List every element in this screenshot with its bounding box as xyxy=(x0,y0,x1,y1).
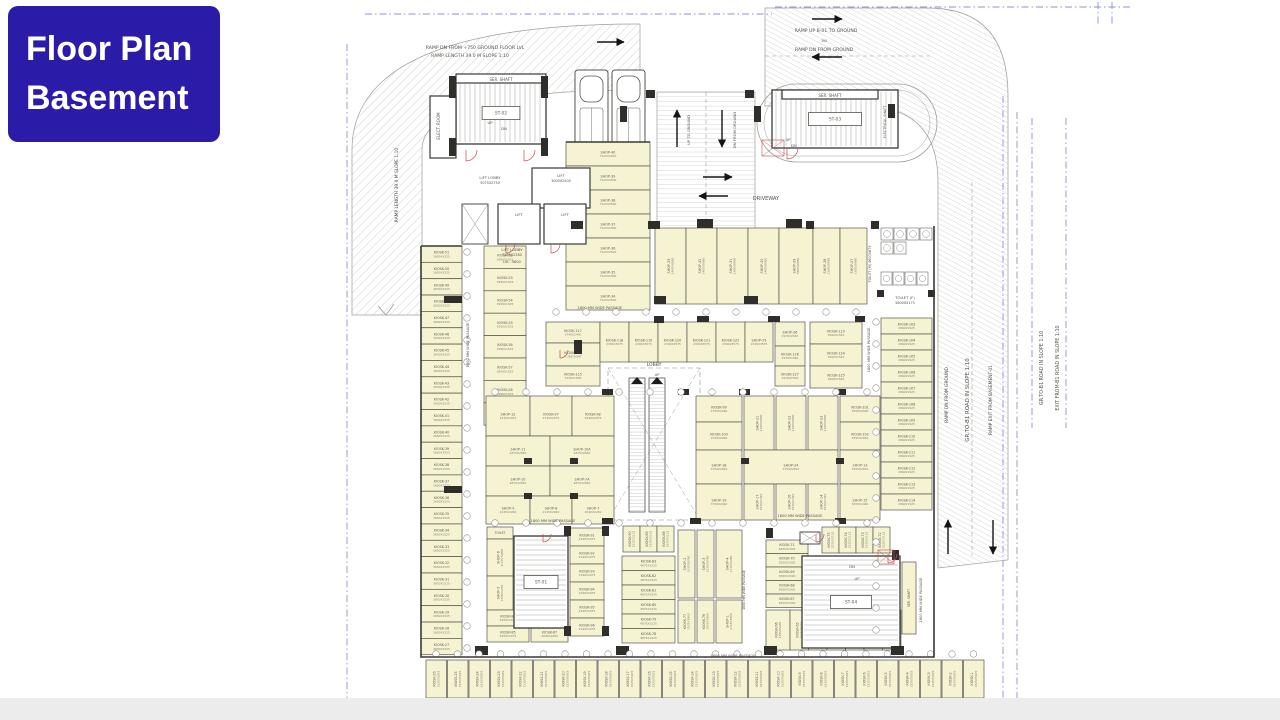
structural-column xyxy=(741,458,749,464)
grid-bubble xyxy=(678,389,685,396)
unit-label: KIOSK-41525X5025 xyxy=(906,670,914,687)
grid-bubble xyxy=(873,583,880,590)
unit-label: KIOSK-1202300X3575 xyxy=(664,338,682,346)
unit-label: SHOP-193750X2440 xyxy=(711,498,728,506)
unit-label: KIOSK-91525X5025 xyxy=(798,670,806,687)
toilet-fixture xyxy=(907,228,919,240)
annotation-text: 5075X2750 xyxy=(480,181,500,185)
unit-label: SER. SHAFT xyxy=(907,589,911,608)
slide-bottom-band xyxy=(0,698,1280,720)
unit-label: KIOSK-1003750X2060 xyxy=(710,432,728,440)
annotation-text-vertical: ELECTRICAL SHAFT xyxy=(883,105,887,139)
unit-label: KIOSK-141525X5025 xyxy=(691,670,699,687)
annotation-text-vertical: GR.TO-B1 ROAD IN SLOPE 1:10 xyxy=(1039,331,1045,405)
unit-label: KIOSK-343650X1525 xyxy=(433,529,450,537)
unit-label: KIOSK-1132960X1525 xyxy=(898,482,916,490)
unit-label: KIOSK-662355X5030 xyxy=(774,621,782,638)
unit-label: KIOSK-922190X1675 xyxy=(579,551,596,559)
slide-canvas: KIOSK-513650X1525KIOSK-503650X1525KIOSK-… xyxy=(0,0,1280,720)
grid-bubble xyxy=(673,309,680,316)
annotation-text: RAMP DN FROM GROUND xyxy=(795,47,854,53)
stair-label: ST-04 xyxy=(845,600,857,606)
structural-column xyxy=(444,486,462,493)
door-swing xyxy=(787,148,798,159)
grid-bubble xyxy=(492,520,499,527)
unit-label: KIOSK-423650X1525 xyxy=(433,398,450,406)
page-title-line2: Basement xyxy=(26,74,220,123)
toilet-fixture xyxy=(917,272,928,285)
structural-column xyxy=(766,528,773,538)
grid-bubble xyxy=(873,407,880,414)
grid-bubble xyxy=(709,520,716,527)
grid-bubble xyxy=(643,309,650,316)
unit-label: KIOSK-962190X1675 xyxy=(579,623,596,631)
grid-bubble xyxy=(464,579,471,586)
unit-label: KIOSK-713650X1500 xyxy=(779,543,796,551)
grid-bubble xyxy=(464,645,471,652)
unit-label: KIOSK-731525X2115 xyxy=(861,531,869,548)
grid-bubble xyxy=(464,293,471,300)
annotation-text: LIFT xyxy=(515,212,523,217)
unit-label: KIOSK-814875X1525 xyxy=(640,589,657,597)
grid-bubble xyxy=(464,601,471,608)
grid-bubble xyxy=(873,495,880,502)
toilet-fixture xyxy=(905,272,916,285)
unit-label: KIOSK-912190X1675 xyxy=(579,533,596,541)
unit-label: KIOSK-71525X5025 xyxy=(841,670,849,687)
annotation-text-vertical: 1800 MM WIDE PASSAGE xyxy=(466,322,470,368)
grid-bubble xyxy=(585,389,592,396)
unit-label: KIOSK-383650X1525 xyxy=(433,463,450,471)
unit-label: KIOSK-991750X2060 xyxy=(711,405,728,413)
unit-label: KIOSK-503650X1525 xyxy=(433,267,450,275)
unit-label: KIOSK-855450X1675 xyxy=(500,630,517,638)
unit-label: KIOSK-403650X1525 xyxy=(433,430,450,438)
structural-column xyxy=(888,104,895,118)
unit-label: KIOSK-131525X5025 xyxy=(712,670,720,687)
annotation-text: 3000X2500 xyxy=(551,179,571,183)
annotation-text-vertical: UP TO GROUND xyxy=(686,115,691,145)
grid-bubble xyxy=(616,520,623,527)
unit-label: SHOP-104875X2650 xyxy=(510,477,527,485)
annotation-text: LIFT LOBBY xyxy=(501,247,523,252)
grid-bubble xyxy=(464,623,471,630)
annotation-text: LIFT LOBBY xyxy=(479,175,501,180)
unit-label: KIOSK-834875X1525 xyxy=(640,560,657,568)
grid-bubble xyxy=(464,557,471,564)
unit-label: SHOP-232100X5000 xyxy=(819,414,827,431)
grid-bubble xyxy=(873,319,880,326)
grid-bubble xyxy=(864,389,871,396)
unit-label: KIOSK-824875X1525 xyxy=(640,574,657,582)
unit-label: SHOP-377415X2500 xyxy=(600,222,617,230)
unit-label: SHOP-357415X2500 xyxy=(600,270,617,278)
unit-label: KIOSK-81525X5025 xyxy=(820,670,828,687)
grid-bubble xyxy=(873,341,880,348)
unit-label: KIOSK-473650X1525 xyxy=(433,316,450,324)
annotation-text: RAMP DN FROM +750 GROUND FLOOR LVL xyxy=(426,45,525,51)
structural-column xyxy=(570,493,578,499)
unit-label: KIOSK-493650X1525 xyxy=(433,283,450,291)
unit-label: SHOP-133455X2810 xyxy=(852,463,869,471)
unit-label: SHOP-282300X8080 xyxy=(823,257,831,274)
annotation-text: LOBBY xyxy=(647,362,662,368)
grid-bubble xyxy=(873,561,880,568)
ramp-center xyxy=(657,92,755,232)
structural-column xyxy=(541,76,548,98)
unit-label: SHOP-68.235 SQMT xyxy=(496,548,504,566)
unit-label: KIOSK-1052960X1525 xyxy=(898,354,916,362)
annotation-text: SER. SHAFT xyxy=(489,77,513,82)
unit-label: KIOSK-771525X3960 xyxy=(683,613,691,630)
unit-label: SHOP-212100X5000 xyxy=(755,414,763,431)
structural-column xyxy=(449,76,456,98)
annotation-text-vertical: RAMP DN FROM GROUND xyxy=(944,366,950,422)
unit-label: KIOSK-273650X1525 xyxy=(433,643,450,651)
unit-label: KIOSK-283650X1525 xyxy=(433,627,450,635)
unit-label: KIOSK-881525X2115 xyxy=(662,530,670,547)
grid-bubble xyxy=(647,520,654,527)
unit-label: KIOSK-11525X5025 xyxy=(970,670,978,687)
annotation-text-vertical: RAMP EXIT FROM BASEMENT-01 xyxy=(988,365,994,435)
grid-bubble xyxy=(464,249,471,256)
structural-column xyxy=(570,458,578,464)
unit-label: KIOSK-121525X5025 xyxy=(734,670,742,687)
unit-label: SHOP-114875X2650 xyxy=(510,447,527,455)
toilet-fixture xyxy=(894,228,906,240)
unit-label: KIOSK-1142960X1525 xyxy=(898,498,916,506)
grid-bubble xyxy=(464,315,471,322)
unit-label: KIOSK-1272970X1500 xyxy=(781,372,799,380)
annotation-text: RAMP UP B-01 TO GROUND xyxy=(795,28,858,34)
grid-bubble xyxy=(833,389,840,396)
annotation-text-vertical: EXIT FROM-B1 ROAD IN SLOPE 1:10 xyxy=(1055,325,1061,410)
grid-bubble xyxy=(793,309,800,316)
unit-label: KIOSK-794875X1525 xyxy=(640,618,657,626)
annotation-text: LVL -3600 xyxy=(503,260,521,264)
structural-column xyxy=(602,526,609,536)
unit-label: SHOP-347415X2500 xyxy=(600,294,617,302)
grid-bubble xyxy=(647,389,654,396)
unit-label: SHOP-21525X6780 xyxy=(683,555,691,572)
unit-label: KIOSK-1042960X1525 xyxy=(898,338,916,346)
staircase-st-02: ST-02 xyxy=(456,82,546,144)
unit-label: SHOP-82145X2240 xyxy=(543,506,560,514)
annotation-text-vertical: 1800 MM WIDE PASSAGE xyxy=(919,577,923,623)
unit-label: SHOP-222100X5000 xyxy=(787,414,795,431)
grid-bubble xyxy=(464,271,471,278)
structural-column xyxy=(449,138,456,156)
annotation-text: DRIVEWAY xyxy=(753,196,780,202)
annotation-text: DN xyxy=(501,126,507,131)
annotation-text-vertical: 1800 MM WIDE PASSAGE xyxy=(742,570,746,610)
structural-column xyxy=(697,316,709,322)
structural-column xyxy=(745,90,754,98)
escalator-left xyxy=(629,378,645,512)
annotation-text: LIFT xyxy=(561,212,569,217)
unit-label: KIOSK-804875X1525 xyxy=(640,603,657,611)
unit-label: SHOP-153455X2440 xyxy=(852,498,869,506)
structural-column xyxy=(602,518,613,524)
structural-column xyxy=(855,316,865,322)
structural-column xyxy=(571,221,583,229)
unit-label: KIOSK-463650X1525 xyxy=(433,332,450,340)
unit-label: KIOSK-1233000X1525 xyxy=(827,329,845,337)
grid-bubble xyxy=(853,309,860,316)
unit-label: SHOP-293800X8080 xyxy=(792,257,800,274)
grid-bubble xyxy=(703,309,710,316)
unit-label: KIOSK-363650X1525 xyxy=(433,496,450,504)
unit-label: KIOSK-563950X1525 xyxy=(497,343,514,351)
unit-label: TOILET xyxy=(493,531,505,535)
unit-label: KIOSK-952190X1675 xyxy=(579,605,596,613)
unit-label: KIOSK-741525X2115 xyxy=(844,531,852,548)
stair-label: ST-01 xyxy=(535,580,547,586)
structural-column xyxy=(871,221,879,229)
unit-label: SHOP-92245X2240 xyxy=(500,506,517,514)
unit-label: KIOSK-151525X5025 xyxy=(669,670,677,687)
unit-label: KIOSK-553950X1525 xyxy=(497,321,514,329)
structural-column xyxy=(602,626,609,636)
unit-label: SHOP-72040X2240 xyxy=(585,506,602,514)
unit-label: KIOSK-191525X5025 xyxy=(583,670,591,687)
toilet-fixture xyxy=(881,272,892,285)
unit-label: KIOSK-51525X5025 xyxy=(884,670,892,687)
grid-bubble xyxy=(873,605,880,612)
unit-label: SHOP-12115X3960 xyxy=(725,613,733,630)
unit-label: KIOSK-333650X1525 xyxy=(433,545,450,553)
structural-column xyxy=(564,526,571,536)
grid-bubble xyxy=(553,309,560,316)
unit-label: KIOSK-932190X1675 xyxy=(579,569,596,577)
unit-label: KIOSK-583950X1525 xyxy=(497,388,514,396)
unit-label: SHOP-272300X8080 xyxy=(850,257,858,274)
grid-bubble xyxy=(492,389,499,396)
grid-bubble xyxy=(554,389,561,396)
unit-label: KIOSK-1072960X1525 xyxy=(898,386,916,394)
unit-label: KIOSK-573950X1525 xyxy=(497,366,514,374)
unit-label: KIOSK-101525X5025 xyxy=(777,670,785,687)
grid-bubble xyxy=(873,517,880,524)
unit-label: KIOSK-393650X1525 xyxy=(433,447,450,455)
unit-label: SHOP-252345X3575 xyxy=(751,338,768,346)
unit-label: SHOP-42115X6780 xyxy=(725,555,733,572)
unit-label: KIOSK-761525X3960 xyxy=(702,613,710,630)
unit-label: KIOSK-261525X5025 xyxy=(433,670,441,687)
grid-bubble xyxy=(833,520,840,527)
unit-label: KIOSK-513650X1525 xyxy=(433,251,450,259)
structural-column xyxy=(768,316,780,322)
grid-bubble xyxy=(802,389,809,396)
unit-label: KIOSK-1112960X1525 xyxy=(898,450,916,458)
unit-label: KIOSK-673650X1500 xyxy=(779,597,796,605)
unit-label: KIOSK-1013055X2000 xyxy=(851,405,869,413)
structural-column xyxy=(877,290,884,297)
unit-label: SHOP-332400X8080 xyxy=(667,257,675,274)
structural-column xyxy=(654,296,666,304)
grid-bubble xyxy=(464,535,471,542)
unit-label: KIOSK-683650X1500 xyxy=(779,584,796,592)
unit-label: KIOSK-1253000X1525 xyxy=(827,373,845,381)
grid-bubble xyxy=(802,520,809,527)
unit-label: KIOSK-1032960X1525 xyxy=(898,322,916,330)
unit-label: KIOSK-972145X2975 xyxy=(543,412,560,420)
grid-bubble xyxy=(740,520,747,527)
unit-label: KIOSK-453650X1525 xyxy=(433,349,450,357)
annotation-text: 300 xyxy=(821,39,827,43)
staircase-st-01: ST-01 xyxy=(514,536,568,628)
unit-label: KIOSK-21525X5025 xyxy=(949,670,957,687)
grid-bubble xyxy=(873,451,880,458)
annotation-text: UP xyxy=(655,373,661,377)
grid-bubble xyxy=(464,513,471,520)
unit-label: KIOSK-784875X1525 xyxy=(640,632,657,640)
unit-label: KIOSK-211525X5025 xyxy=(540,670,548,687)
page-title-line1: Floor Plan xyxy=(26,25,220,74)
unit-label: KIOSK-31525X5025 xyxy=(927,670,935,687)
unit-label: KIOSK-61525X5025 xyxy=(863,670,871,687)
unit-label: SHOP-302400X8080 xyxy=(760,257,768,274)
unit-label: KIOSK-891525X2115 xyxy=(645,530,653,547)
unit-label: KIOSK-433650X1525 xyxy=(433,381,450,389)
stair-label: ST-02 xyxy=(495,111,507,117)
structural-column xyxy=(602,389,613,395)
annotation-text: 7230X2280 xyxy=(502,253,522,257)
grid-bubble xyxy=(740,389,747,396)
unit-label: KIOSK-1262970X1500 xyxy=(781,352,799,360)
grid-bubble xyxy=(864,520,871,527)
structural-column xyxy=(564,626,571,636)
grid-bubble xyxy=(733,309,740,316)
structural-column xyxy=(891,646,904,655)
grid-bubble xyxy=(873,429,880,436)
unit-label: KIOSK-161525X5025 xyxy=(648,670,656,687)
grid-bubble xyxy=(970,651,977,658)
structural-column xyxy=(764,646,777,655)
structural-column xyxy=(744,296,758,304)
grid-bubble xyxy=(616,389,623,396)
grid-bubble xyxy=(873,385,880,392)
unit-label: KIOSK-1182300X3575 xyxy=(606,338,624,346)
unit-label: KIOSK-533950X1525 xyxy=(497,276,514,284)
toilet-fixture xyxy=(920,228,932,240)
unit-label: SHOP-183750X2810 xyxy=(711,463,728,471)
unit-label: KIOSK-201525X5025 xyxy=(562,670,570,687)
grid-bubble xyxy=(873,473,880,480)
unit-label: KIOSK-1173740X2400 xyxy=(564,329,582,337)
structural-column xyxy=(786,219,802,228)
unit-label: SHOP-171525X2440 xyxy=(755,493,763,510)
unit-label: SHOP-122245X2975 xyxy=(500,412,517,420)
door-swing xyxy=(524,150,535,161)
grid-bubble xyxy=(464,403,471,410)
annotation-text: 1800 MM WIDE PASSAGE xyxy=(531,519,577,523)
unit-label: KIOSK-221525X5025 xyxy=(519,670,527,687)
annotation-text: 1800 MM WIDE PASSAGE xyxy=(778,514,824,518)
grid-bubble xyxy=(523,520,530,527)
unit-label: KIOSK-313650X1525 xyxy=(433,578,450,586)
unit-label: KIOSK-873940X1060 xyxy=(541,630,558,638)
unit-label: KIOSK-323650X1525 xyxy=(433,561,450,569)
grid-bubble xyxy=(949,651,956,658)
unit-label: KIOSK-721525X2115 xyxy=(878,531,886,548)
annotation-text: SER. SHAFT xyxy=(818,93,842,98)
unit-label: KIOSK-171525X5025 xyxy=(626,670,634,687)
annotation-text-vertical: RAMP LENGTH 39.0 M SLOPE 1:10 xyxy=(394,148,400,223)
unit-label: SHOP-10A4875X2650 xyxy=(573,447,591,455)
grid-bubble xyxy=(678,520,685,527)
unit-label: KIOSK-251525X5025 xyxy=(454,670,462,687)
grid-bubble xyxy=(709,389,716,396)
annotation-text: DN xyxy=(849,564,855,569)
grid-bubble xyxy=(464,381,471,388)
door-swing xyxy=(466,150,477,161)
unit-label: KIOSK-543950X1525 xyxy=(497,298,514,306)
unit-label: KIOSK-241525X5025 xyxy=(476,670,484,687)
title-card: Floor Plan Basement xyxy=(8,6,220,142)
unit-label: KIOSK-181525X5025 xyxy=(605,670,613,687)
annotation-text-vertical: DN FROM GROUND xyxy=(732,112,737,148)
unit-label: SHOP-387415X2500 xyxy=(600,198,617,206)
staircase-st-04: ST-04 xyxy=(802,556,900,648)
structural-column xyxy=(836,458,844,464)
grid-bubble xyxy=(464,447,471,454)
annotation-text: UP xyxy=(786,138,792,142)
annotation-text: UP xyxy=(487,120,493,125)
grid-bubble xyxy=(873,539,880,546)
grid-bubble xyxy=(873,627,880,634)
unit-label: SHOP-397415X2500 xyxy=(600,174,617,182)
unit-label: KIOSK-942190X1675 xyxy=(579,587,596,595)
annotation-text: TOILET (F) xyxy=(894,295,915,300)
escalator-right xyxy=(649,378,665,512)
structural-column xyxy=(648,221,660,229)
annotation-text: UP xyxy=(854,576,860,581)
annotation-text: 1800 MM WIDE PASSAGE xyxy=(578,306,624,310)
shaft-braced-box xyxy=(462,204,488,244)
grid-bubble xyxy=(464,469,471,476)
unit-label: KIOSK-1082960X1525 xyxy=(898,402,916,410)
structural-column xyxy=(524,458,532,464)
structural-column xyxy=(697,219,713,228)
structural-column xyxy=(690,518,701,524)
unit-label: KIOSK-1122960X1525 xyxy=(898,466,916,474)
unit-label: KIOSK-1192300X3575 xyxy=(635,338,653,346)
structural-column xyxy=(806,221,814,229)
annotation-text-vertical: GR.TO-B1 ROAD IN SLOPE 1:10 xyxy=(965,358,971,442)
unit-label: KIOSK-111525X5025 xyxy=(755,670,763,687)
structural-column xyxy=(541,138,548,156)
unit-label: SHOP-312400X8080 xyxy=(729,257,737,274)
grid-bubble xyxy=(771,520,778,527)
unit-label: KIOSK-693650X1500 xyxy=(779,570,796,578)
structural-column xyxy=(524,493,532,499)
unit-label: KIOSK-1102960X1525 xyxy=(898,434,916,442)
unit-label: KIOSK-1023555X2050 xyxy=(851,432,869,440)
unit-label: KIOSK-901525X2115 xyxy=(628,530,636,547)
annotation-text: 5800X5175 xyxy=(895,301,915,305)
unit-label: SHOP-52345X4700 xyxy=(496,584,504,601)
unit-label: KIOSK-293650X1525 xyxy=(433,610,450,618)
grid-bubble xyxy=(823,309,830,316)
unit-label: SHOP-262970X2345 xyxy=(782,330,799,338)
unit-label: SHOP-141525X2440 xyxy=(819,493,827,510)
grid-bubble xyxy=(585,520,592,527)
grid-bubble xyxy=(763,309,770,316)
toilet-fixture xyxy=(881,228,893,240)
unit-label: KIOSK-413650X1525 xyxy=(433,414,450,422)
toilet-fixture xyxy=(893,272,904,285)
